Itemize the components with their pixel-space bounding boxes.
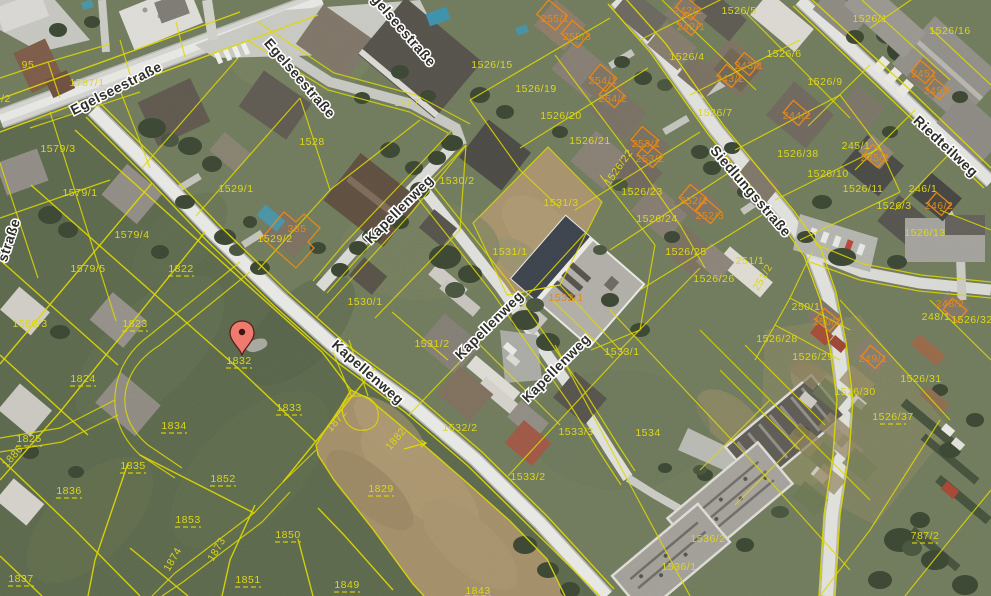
svg-text:1526/1: 1526/1 bbox=[852, 13, 887, 25]
svg-text:246/2: 246/2 bbox=[925, 200, 954, 212]
svg-text:1825: 1825 bbox=[16, 433, 41, 445]
svg-text:1526/15: 1526/15 bbox=[471, 59, 512, 71]
svg-text:249/1: 249/1 bbox=[859, 353, 888, 365]
svg-text:1526/37: 1526/37 bbox=[872, 411, 913, 423]
svg-text:245/2: 245/2 bbox=[861, 152, 890, 164]
svg-text:1526/21: 1526/21 bbox=[569, 135, 610, 147]
svg-text:245/1: 245/1 bbox=[842, 140, 871, 152]
svg-text:250/1: 250/1 bbox=[792, 301, 821, 313]
svg-text:1526/26: 1526/26 bbox=[693, 273, 734, 285]
svg-text:1526/19: 1526/19 bbox=[515, 83, 556, 95]
svg-text:1526/5: 1526/5 bbox=[721, 5, 756, 17]
svg-text:1526/23: 1526/23 bbox=[621, 186, 662, 198]
svg-text:787/2: 787/2 bbox=[911, 530, 940, 542]
svg-text:1529/1: 1529/1 bbox=[218, 183, 253, 195]
svg-text:1533/1: 1533/1 bbox=[604, 346, 639, 358]
svg-text:1834: 1834 bbox=[161, 420, 186, 432]
svg-text:1852: 1852 bbox=[210, 473, 235, 485]
svg-text:/2: /2 bbox=[1, 93, 11, 105]
svg-text:1532/2: 1532/2 bbox=[442, 422, 477, 434]
svg-text:1531/3: 1531/3 bbox=[543, 197, 578, 209]
svg-text:1531/1: 1531/1 bbox=[492, 246, 527, 258]
svg-text:1526/28: 1526/28 bbox=[756, 333, 797, 345]
svg-text:253/2: 253/2 bbox=[636, 153, 665, 165]
svg-text:1526/29: 1526/29 bbox=[792, 351, 833, 363]
svg-text:1526/7: 1526/7 bbox=[697, 107, 732, 119]
svg-text:1579/5: 1579/5 bbox=[70, 263, 105, 275]
svg-text:1533/3: 1533/3 bbox=[558, 426, 593, 438]
svg-text:1835: 1835 bbox=[120, 460, 145, 472]
svg-text:1579/4: 1579/4 bbox=[114, 229, 149, 241]
svg-text:242/2: 242/2 bbox=[674, 5, 703, 17]
svg-text:1530/2: 1530/2 bbox=[439, 175, 474, 187]
svg-text:1536/2: 1536/2 bbox=[690, 533, 725, 545]
svg-text:1851: 1851 bbox=[235, 574, 260, 586]
svg-text:1526/30: 1526/30 bbox=[834, 386, 875, 398]
svg-text:1526/10: 1526/10 bbox=[807, 168, 848, 180]
svg-text:244/2: 244/2 bbox=[783, 110, 812, 122]
svg-text:1527: 1527 bbox=[394, 97, 419, 109]
svg-text:252/1: 252/1 bbox=[680, 195, 709, 207]
svg-text:243/1: 243/1 bbox=[735, 60, 764, 72]
svg-text:95: 95 bbox=[22, 59, 35, 71]
svg-text:1530/1: 1530/1 bbox=[347, 296, 382, 308]
svg-text:2451: 2451 bbox=[911, 68, 936, 80]
svg-text:1579/3: 1579/3 bbox=[40, 143, 75, 155]
svg-text:1533/2: 1533/2 bbox=[510, 471, 545, 483]
svg-text:1833: 1833 bbox=[276, 402, 301, 414]
svg-text:1526/32: 1526/32 bbox=[951, 314, 991, 326]
svg-text:255/3: 255/3 bbox=[563, 31, 592, 43]
svg-text:1829: 1829 bbox=[368, 483, 393, 495]
svg-text:1526/25: 1526/25 bbox=[665, 246, 706, 258]
svg-text:335: 335 bbox=[287, 223, 306, 235]
svg-text:1526/20: 1526/20 bbox=[540, 110, 581, 122]
svg-text:1526/4: 1526/4 bbox=[669, 51, 704, 63]
svg-text:1526/31: 1526/31 bbox=[900, 373, 941, 385]
svg-text:252/3: 252/3 bbox=[696, 210, 725, 222]
svg-text:1853: 1853 bbox=[175, 514, 200, 526]
svg-text:1534: 1534 bbox=[635, 427, 660, 439]
svg-text:1526/24: 1526/24 bbox=[636, 213, 677, 225]
svg-text:1837: 1837 bbox=[8, 573, 33, 585]
svg-text:1850: 1850 bbox=[275, 529, 300, 541]
svg-text:246/1: 246/1 bbox=[909, 183, 938, 195]
svg-text:1536/1: 1536/1 bbox=[661, 561, 696, 573]
svg-text:250/2: 250/2 bbox=[813, 316, 842, 328]
svg-text:1526/16: 1526/16 bbox=[929, 25, 970, 37]
svg-text:245/7: 245/7 bbox=[924, 85, 953, 97]
svg-text:243/2: 243/2 bbox=[716, 73, 745, 85]
svg-text:1832: 1832 bbox=[226, 355, 251, 367]
svg-text:251/1: 251/1 bbox=[736, 255, 765, 267]
svg-text:254/2: 254/2 bbox=[599, 93, 628, 105]
svg-text:1526/11: 1526/11 bbox=[843, 183, 884, 195]
svg-text:248/2: 248/2 bbox=[936, 298, 965, 310]
svg-text:1526/38: 1526/38 bbox=[777, 148, 818, 160]
svg-text:1822: 1822 bbox=[168, 263, 193, 275]
svg-text:1849: 1849 bbox=[334, 579, 359, 591]
svg-text:1526/13: 1526/13 bbox=[904, 227, 945, 239]
svg-text:1526/3: 1526/3 bbox=[876, 200, 911, 212]
svg-text:253/1: 253/1 bbox=[632, 138, 661, 150]
svg-text:1526/9: 1526/9 bbox=[807, 76, 842, 88]
svg-text:1836: 1836 bbox=[56, 485, 81, 497]
svg-text:1532/1: 1532/1 bbox=[548, 292, 583, 304]
svg-text:242/1: 242/1 bbox=[677, 21, 706, 33]
svg-text:1824: 1824 bbox=[70, 373, 95, 385]
svg-text:1526/6: 1526/6 bbox=[766, 48, 801, 60]
svg-text:254/1: 254/1 bbox=[589, 75, 618, 87]
svg-text:1528: 1528 bbox=[299, 136, 324, 148]
svg-text:255/1: 255/1 bbox=[541, 13, 570, 25]
svg-text:1531/2: 1531/2 bbox=[414, 338, 449, 350]
svg-text:1843: 1843 bbox=[465, 585, 490, 596]
svg-text:1580/3: 1580/3 bbox=[12, 318, 47, 330]
svg-text:1579/1: 1579/1 bbox=[62, 187, 97, 199]
svg-text:1823: 1823 bbox=[122, 318, 147, 330]
svg-text:248/1: 248/1 bbox=[922, 311, 951, 323]
